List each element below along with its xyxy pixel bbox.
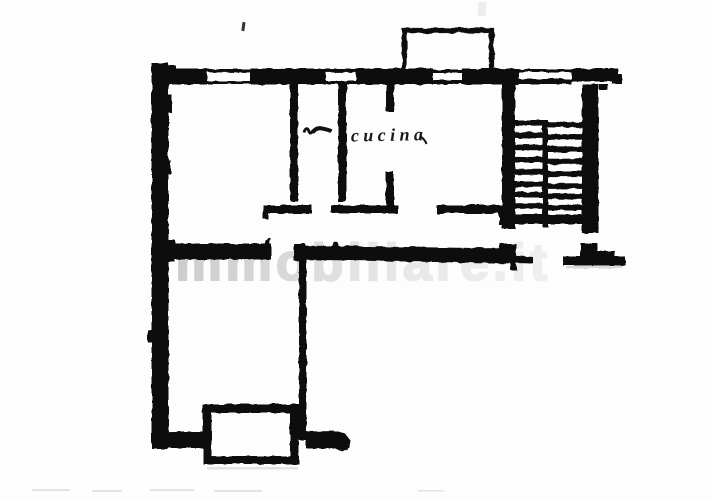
svg-text:cucina: cucina bbox=[351, 124, 428, 145]
